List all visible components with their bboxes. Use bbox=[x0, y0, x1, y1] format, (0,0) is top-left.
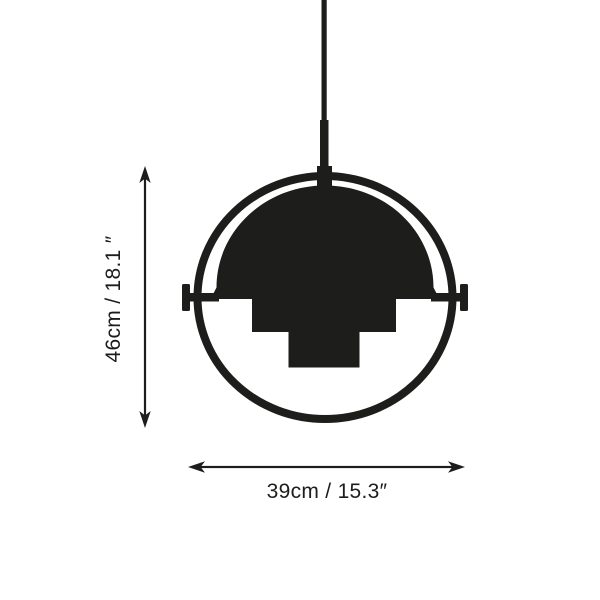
socket-stem bbox=[320, 120, 329, 168]
height-dimension-arrow bbox=[139, 166, 150, 428]
lampshade-silhouette bbox=[211, 186, 440, 368]
pendant-cord bbox=[322, 0, 327, 124]
pendant-lamp bbox=[182, 0, 468, 419]
width-dimension-label: 39cm / 15.3″ bbox=[267, 480, 388, 504]
pendant-lamp-line-drawing bbox=[0, 0, 600, 600]
height-dimension-label: 46cm / 18.1 ″ bbox=[102, 236, 126, 363]
width-dimension-arrow bbox=[188, 461, 465, 472]
right-pivot-cap bbox=[460, 284, 468, 311]
product-dimension-diagram: 46cm / 18.1 ″ 39cm / 15.3″ bbox=[0, 0, 600, 600]
left-pivot-cap bbox=[182, 284, 190, 311]
